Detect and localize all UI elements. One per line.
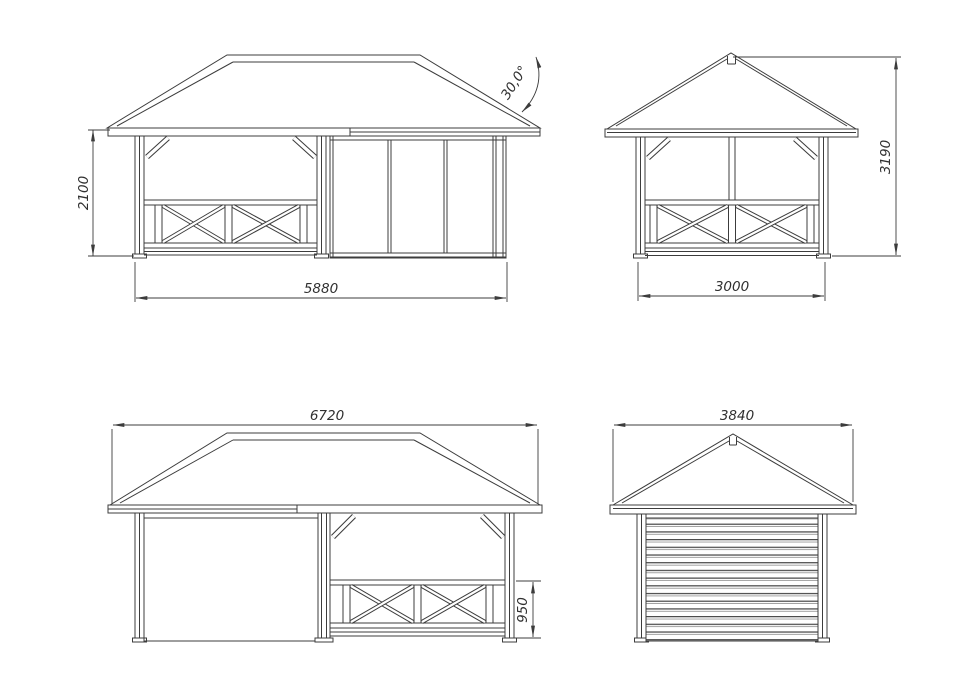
side-a-roof	[605, 53, 858, 137]
side-a-width-label: 3000	[715, 279, 749, 295]
rear-knee-braces	[333, 516, 503, 537]
rear-roof-width-label: 6720	[310, 408, 344, 424]
front-width-label: 5880	[304, 281, 338, 297]
front-height-dimension: 2100	[76, 130, 134, 256]
side-b-roof-width-label: 3840	[720, 408, 754, 424]
side-a-height-label: 3190	[878, 140, 894, 174]
rear-railing	[330, 580, 505, 636]
front-width-dimension: 5880	[135, 262, 507, 302]
side-b-siding-wall	[635, 514, 830, 642]
front-elevation-view: 5880 2100 30,0°	[76, 55, 540, 302]
rear-roof	[108, 433, 542, 513]
side-a-elevation-view: 3000 3190	[605, 53, 901, 301]
side-a-wall	[634, 137, 831, 258]
rear-open-wall	[330, 513, 517, 642]
front-roof-angle-label: 30,0°	[498, 63, 531, 103]
front-open-wall	[133, 136, 329, 258]
side-b-roof	[610, 434, 856, 514]
front-height-label: 2100	[76, 176, 92, 210]
side-a-width-dimension: 3000	[638, 262, 825, 301]
front-knee-braces	[147, 138, 315, 157]
rear-elevation-view: 6720	[108, 408, 542, 642]
technical-drawing-canvas: 5880 2100 30,0°	[0, 0, 980, 687]
drawing-sheet: 5880 2100 30,0°	[0, 0, 980, 687]
front-door-wall	[330, 136, 506, 258]
front-roof-angle-dimension: 30,0°	[498, 57, 539, 112]
front-roof	[107, 55, 540, 136]
rear-siding-wall	[133, 513, 334, 642]
rear-railing-height-label: 950	[515, 597, 531, 623]
rear-railing-height-dimension: 950	[515, 581, 541, 638]
side-b-elevation-view: 3840	[610, 408, 856, 642]
front-railing	[144, 200, 317, 255]
side-a-railing	[645, 200, 819, 256]
